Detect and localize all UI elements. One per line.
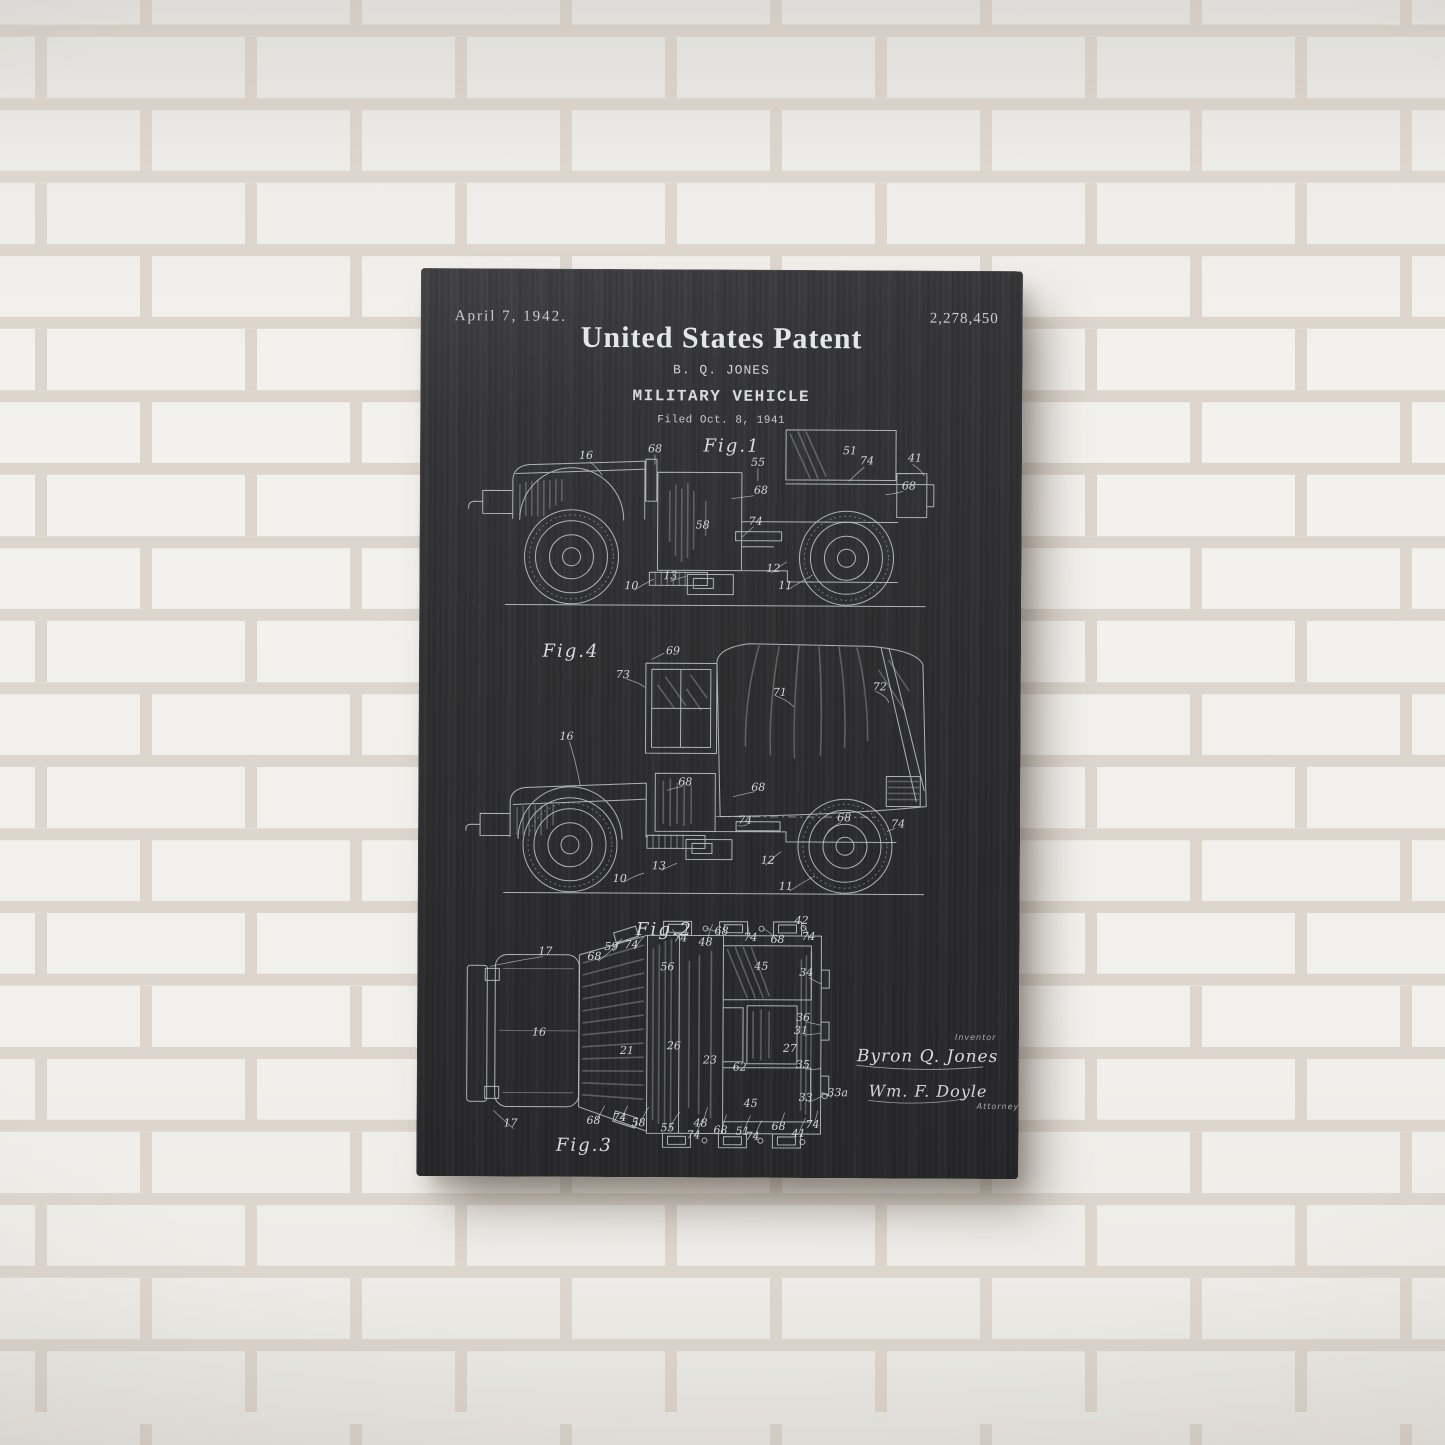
fig4-front-wheel [523, 798, 617, 892]
ref-numeral: 68 [771, 1120, 785, 1133]
ref-numeral: 72 [873, 680, 887, 693]
ref-numeral: 55 [660, 1121, 674, 1134]
ref-numeral: 74 [743, 931, 757, 944]
ref-numeral: 12 [761, 854, 775, 867]
fig23-top-view-drawing: Fig.2 Fig.3 17 68 59 74 74 48 68 74 68 4… [466, 912, 849, 1157]
fig1-front-wheel [524, 510, 618, 604]
ref-numeral: 74 [738, 814, 752, 827]
ref-numeral: 27 [782, 1042, 797, 1055]
ref-numeral: 59 [604, 940, 618, 953]
ref-numeral: 56 [660, 960, 674, 973]
ref-numeral: 58 [696, 518, 710, 531]
ref-numeral: 17 [503, 1116, 517, 1129]
attorney-signature: Wm. F. Doyle [869, 1081, 988, 1101]
ref-numeral: 16 [532, 1026, 546, 1039]
ref-numeral: 33a [827, 1086, 848, 1099]
ref-numeral: 68 [751, 781, 765, 794]
ref-numeral: 41 [790, 1127, 805, 1140]
ref-numeral: 13 [663, 569, 677, 582]
ref-numeral: 10 [624, 579, 638, 592]
attorney-label: Attorney [976, 1102, 1020, 1111]
inventor-label: Inventor [955, 1033, 997, 1042]
ref-numeral: 42 [794, 914, 809, 927]
ref-numeral: 12 [766, 562, 780, 575]
fig1-rear-wheel [799, 511, 893, 605]
ref-numeral: 45 [753, 960, 768, 973]
ref-numeral: 74 [860, 454, 874, 467]
ref-numeral: 11 [778, 579, 792, 592]
ref-numeral: 31 [794, 1024, 808, 1037]
ref-numeral: 68 [587, 1114, 601, 1127]
ref-numeral: 68 [587, 950, 601, 963]
ref-numeral: 74 [801, 930, 815, 943]
ref-numeral: 74 [891, 817, 905, 830]
ref-numeral: 11 [779, 880, 793, 893]
patent-drawings: Fig.1 16 68 55 51 74 41 68 68 58 74 13 1… [416, 268, 1023, 1179]
ref-numeral: 68 [713, 1124, 727, 1137]
ref-numeral: 45 [743, 1097, 758, 1110]
fig1-side-view-drawing: Fig.1 16 68 55 51 74 41 68 68 58 74 13 1… [468, 428, 934, 606]
ref-numeral: 69 [666, 644, 680, 657]
ref-numeral: 74 [749, 515, 763, 528]
ref-numeral: 68 [648, 442, 662, 455]
ref-numeral: 74 [805, 1118, 819, 1131]
ref-numeral: 16 [560, 730, 574, 743]
ref-numeral: 55 [751, 456, 765, 469]
patent-poster: April 7, 1942. 2,278,450 United States P… [416, 268, 1023, 1179]
ref-numeral: 62 [733, 1061, 747, 1074]
ref-numeral: 34 [799, 966, 813, 979]
ref-numeral: 13 [652, 859, 666, 872]
ref-numeral: 74 [673, 931, 687, 944]
ref-numeral: 21 [619, 1044, 634, 1057]
ref-numeral: 74 [745, 1130, 759, 1143]
ref-numeral: 17 [538, 945, 552, 958]
ref-numeral: 68 [754, 484, 768, 497]
signature-block: Inventor Byron Q. Jones Wm. F. Doyle Att… [856, 1032, 1020, 1111]
ref-numeral: 23 [702, 1053, 717, 1066]
ref-numeral: 36 [796, 1011, 810, 1024]
ref-numeral: 68 [837, 811, 851, 824]
ref-numeral: 33 [799, 1091, 813, 1104]
figure-label: Fig.3 [555, 1135, 613, 1156]
ref-numeral: 68 [714, 925, 728, 938]
figure-label: Fig.1 [703, 435, 761, 456]
ref-numeral: 73 [616, 668, 630, 681]
ref-numeral: 35 [796, 1058, 810, 1071]
ref-numeral: 74 [686, 1128, 700, 1141]
ref-numeral: 68 [770, 933, 784, 946]
ref-numeral: 71 [773, 686, 787, 699]
ref-numeral: 10 [613, 872, 627, 885]
ref-numeral: 16 [579, 449, 593, 462]
inventor-signature: Byron Q. Jones [856, 1046, 999, 1067]
ref-numeral: 74 [613, 1111, 627, 1124]
ref-numeral: 68 [902, 480, 916, 493]
ref-numeral: 48 [697, 935, 712, 948]
ref-numeral: 51 [843, 444, 857, 457]
ref-numeral: 68 [678, 775, 692, 788]
figure-label: Fig.4 [541, 641, 599, 662]
ref-numeral: 26 [666, 1039, 681, 1052]
ref-numeral: 74 [624, 938, 638, 951]
ref-numeral: 58 [631, 1116, 645, 1129]
fig4-covered-view-drawing: Fig.4 69 73 71 72 16 68 68 74 68 74 12 1… [466, 640, 927, 894]
ref-numeral: 41 [907, 452, 922, 465]
